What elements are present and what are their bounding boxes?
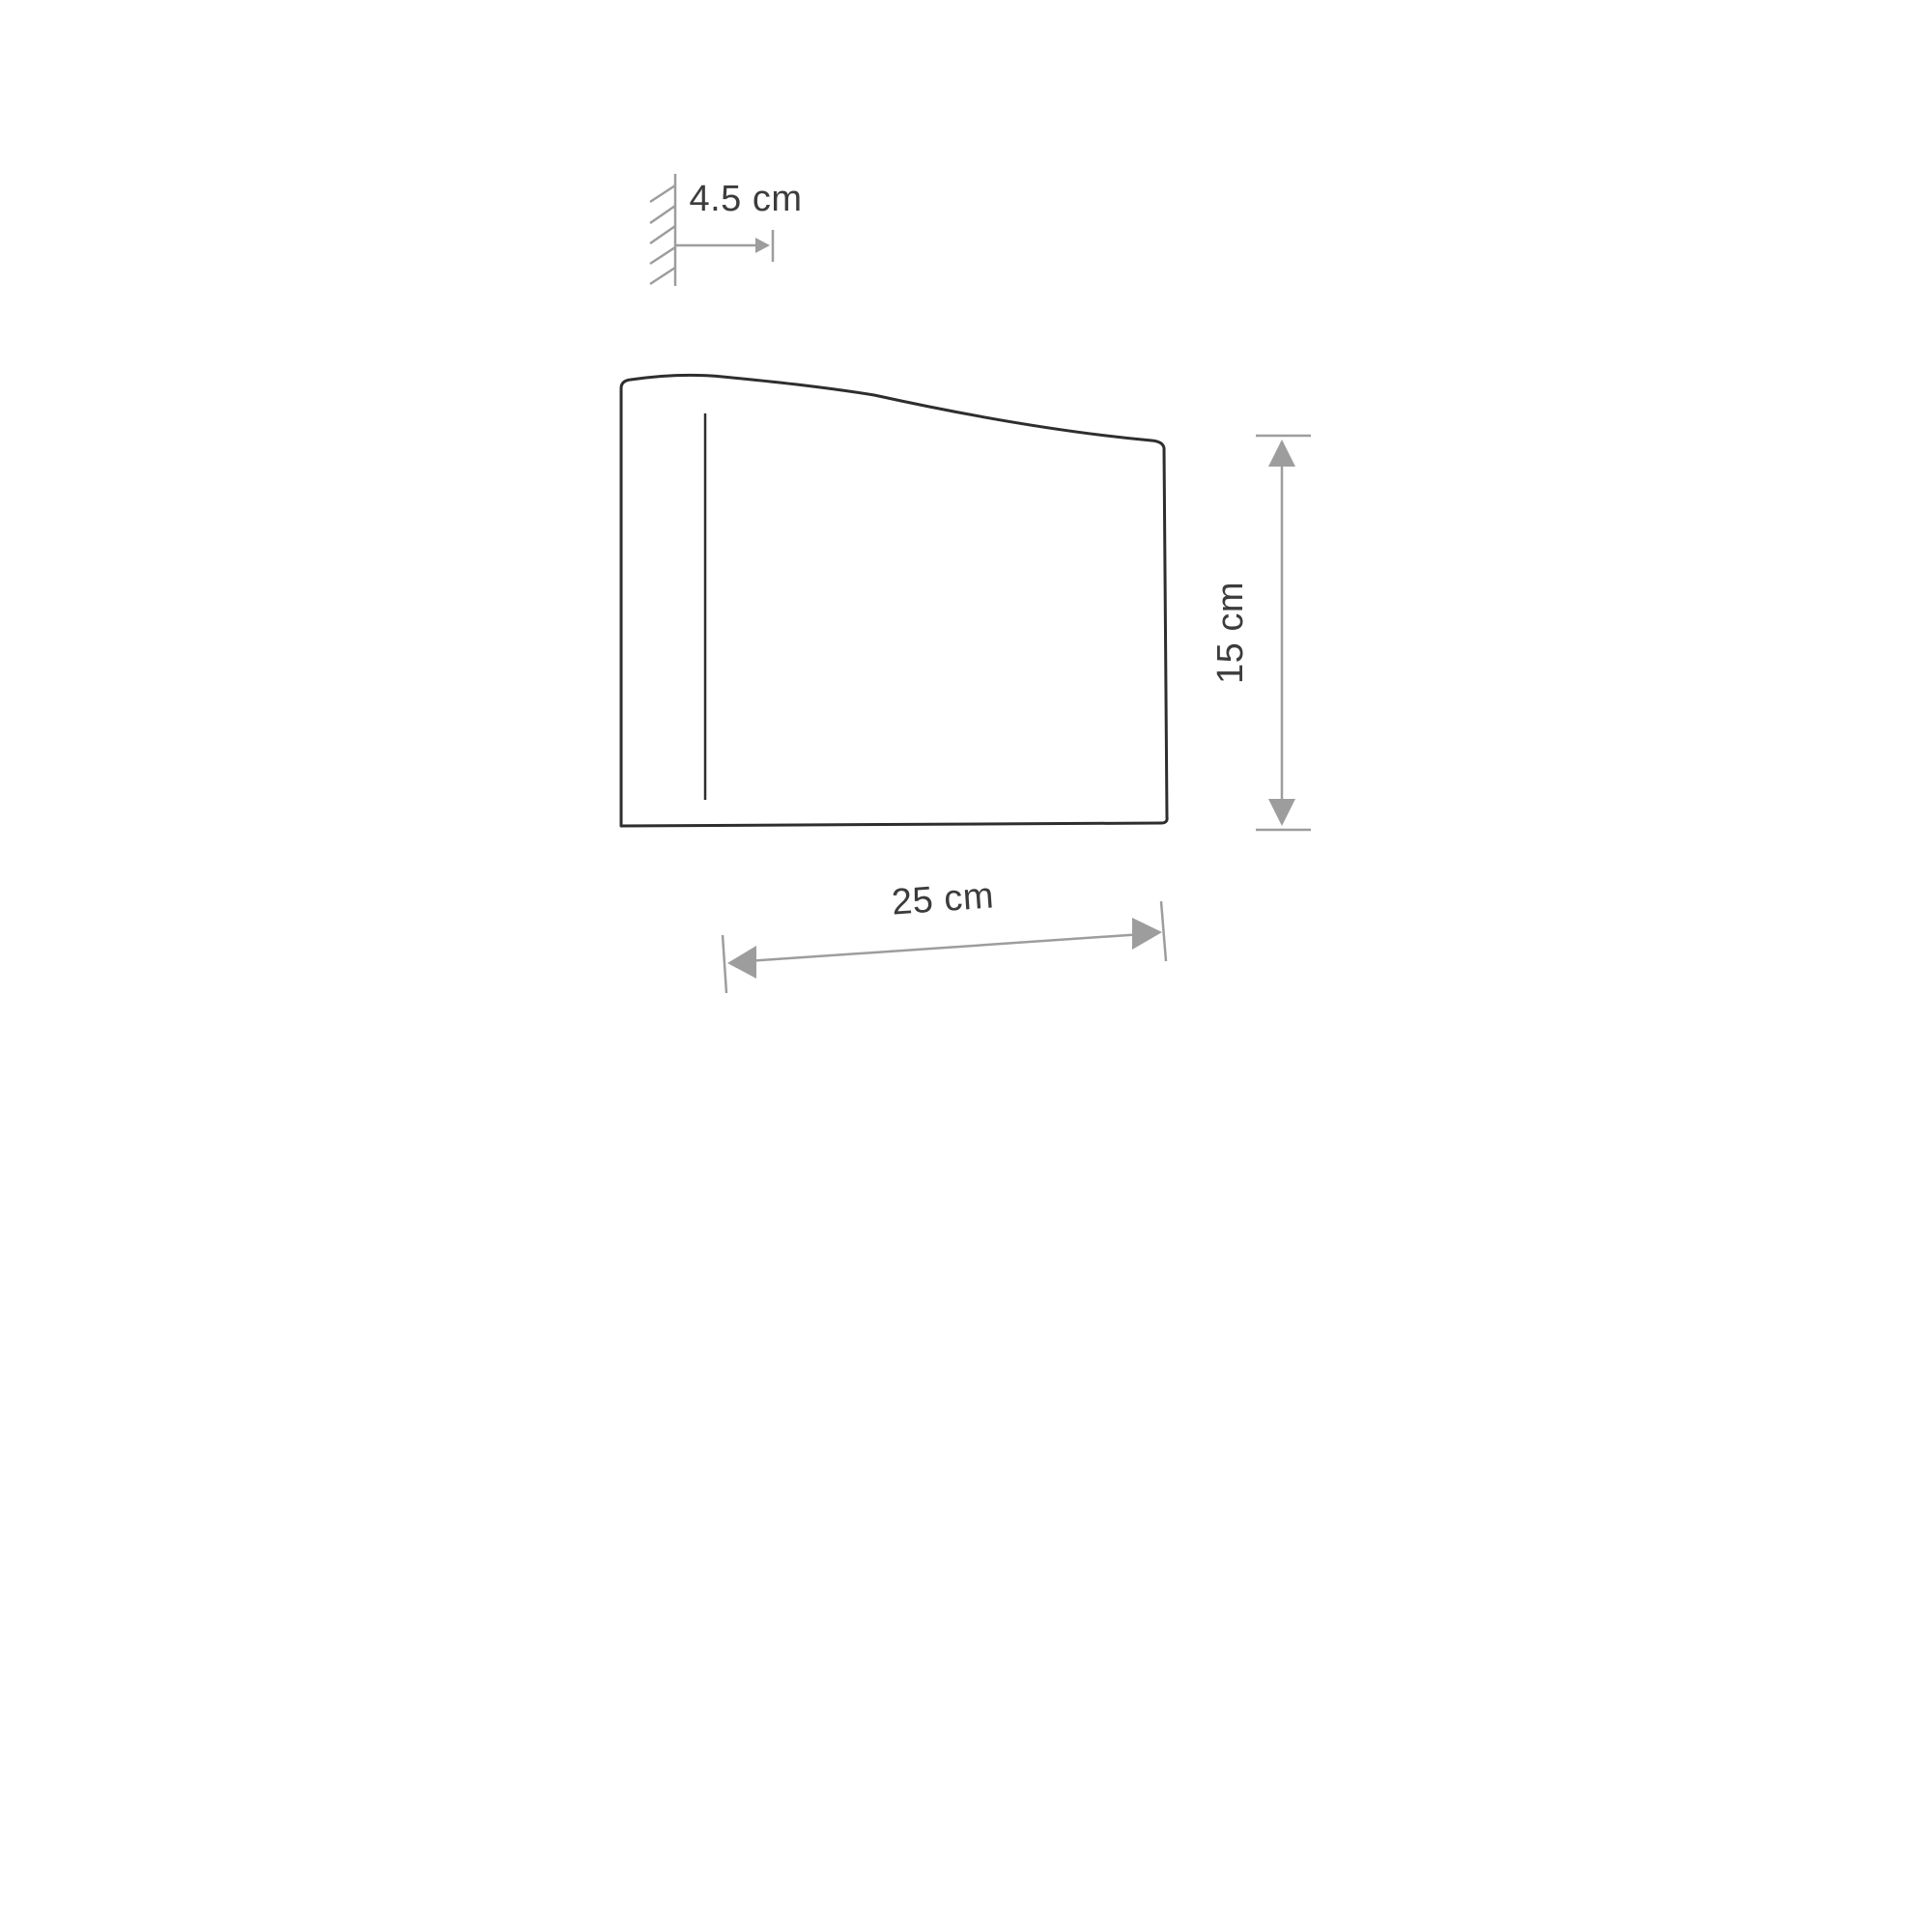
arrowhead-right-icon bbox=[1132, 918, 1162, 950]
width-label: 25 cm bbox=[891, 875, 996, 923]
wall-mount-symbol bbox=[650, 174, 675, 286]
dimension-height: 15 cm bbox=[1210, 436, 1311, 830]
dimension-drawing-svg: 4.5 cm 15 cm 25 cm bbox=[0, 0, 1932, 1932]
height-label: 15 cm bbox=[1210, 582, 1251, 684]
arrowhead-up-icon bbox=[1268, 440, 1295, 467]
width-right-tick bbox=[1161, 901, 1166, 961]
lamp-outline bbox=[621, 375, 1167, 826]
width-dimension-line bbox=[732, 933, 1157, 962]
dimension-width: 25 cm bbox=[723, 875, 1166, 993]
width-left-tick bbox=[723, 935, 726, 993]
arrowhead-down-icon bbox=[1268, 799, 1295, 826]
technical-drawing-canvas: 4.5 cm 15 cm 25 cm bbox=[0, 0, 1932, 1932]
lamp-profile bbox=[621, 375, 1167, 826]
dimension-wall-offset: 4.5 cm bbox=[675, 179, 803, 262]
arrowhead-right-icon bbox=[755, 238, 770, 253]
arrowhead-left-icon bbox=[727, 946, 756, 979]
wall-offset-label: 4.5 cm bbox=[689, 179, 802, 219]
wall-hatch-lines bbox=[650, 185, 675, 284]
